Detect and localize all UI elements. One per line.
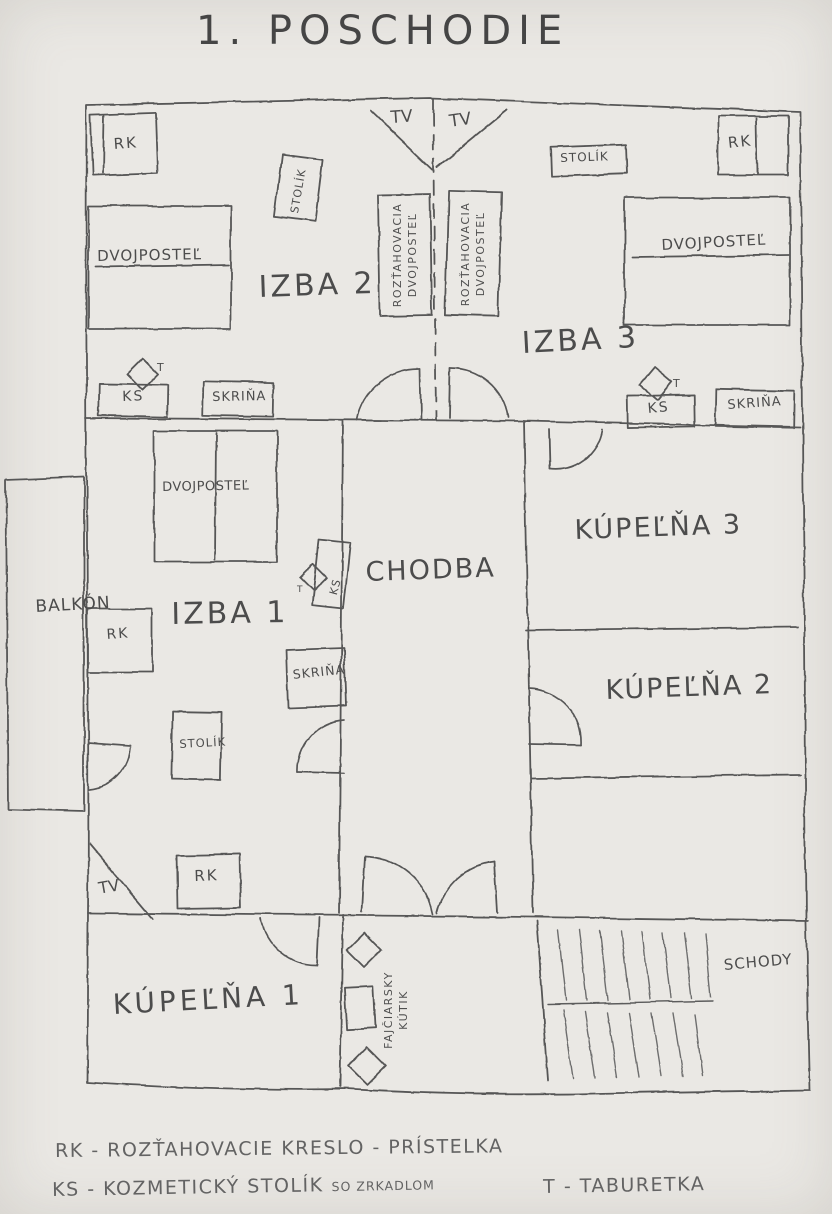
fajciarsky-line1: FAJČIARSKY (381, 971, 396, 1049)
rk-label-izba1-b: RK (194, 866, 219, 885)
page-title: 1. POSCHODIE (196, 8, 569, 54)
tv-corner-lines (90, 99, 507, 919)
roztahovacia-line2: DVOJPOSTEĽ (473, 212, 488, 297)
skrina-label-mid-left: SKRIŇA (212, 389, 267, 405)
dvojpostel-label-izba2: DVOJPOSTEĽ (97, 245, 202, 265)
rk-label-izba3: RK (727, 131, 753, 151)
fajciarsky-line2: KÚTIK (396, 990, 411, 1030)
room-label-izba2: IZBA 2 (258, 266, 376, 305)
room-label-balkon: BALKÓN (35, 593, 111, 617)
rk-label-izba1: RK (106, 625, 130, 643)
ks-label-mid-left: KS (122, 388, 145, 405)
floor-plan-sketch: 1. POSCHODIE IZBA 2 IZBA 3 IZBA 1 CHODBA… (0, 0, 832, 1214)
roztahovacia-line2: DVOJPOSTEĽ (405, 213, 420, 298)
partition-dashed-wall (433, 112, 436, 420)
stolik-label-izba1: STOLÍK (179, 735, 226, 751)
room-label-izba1: IZBA 1 (171, 595, 289, 632)
stolik-label-izba3: STOLÍK (560, 149, 609, 165)
balcony-walls (6, 477, 84, 811)
rk-label-izba2: RK (113, 133, 138, 153)
furniture-mid-left (99, 358, 275, 416)
ks-box (312, 540, 351, 609)
room-label-kupelna2: KÚPEĽŇA 2 (605, 669, 774, 706)
room-label-chodba: CHODBA (365, 552, 496, 588)
diamond-top (347, 933, 381, 967)
dvojpostel-label-izba1: DVOJPOSTEĽ (162, 478, 249, 495)
roztahovacia-line1: ROZŤAHOVACIA (458, 202, 473, 307)
stairs-bottom-row (563, 1010, 703, 1078)
fajciarsky-kutik-label: FAJČIARSKY KÚTIK (379, 945, 413, 1075)
tv-label-izba3: TV (448, 109, 473, 132)
roztahovacia-label-left: ROZŤAHOVACIA DVOJPOSTEĽ (388, 195, 422, 315)
floor-plan-linework (0, 0, 832, 1214)
dvojpostel-line (632, 255, 789, 257)
dvojpostel-line (96, 265, 229, 267)
t-label-mid-right: T (673, 377, 680, 390)
stairs-hatching (548, 930, 713, 1078)
roztahovacia-line1: ROZŤAHOVACIA (390, 203, 405, 308)
room-label-izba3: IZBA 3 (521, 320, 640, 361)
rk-box-inner-line (756, 118, 757, 174)
legend-t: T - TABURETKA (543, 1173, 705, 1198)
legend-rk: RK - ROZŤAHOVACIE KRESLO - PRÍSTELKA (55, 1135, 504, 1162)
tv-label-izba2: TV (390, 106, 413, 127)
t-label-mid-left: T (157, 361, 164, 374)
roztahovacia-label-right: ROZŤAHOVACIA DVOJPOSTEĽ (456, 194, 490, 314)
stairs-landing-line (548, 1001, 713, 1004)
dvojpostel-centerline (215, 433, 216, 560)
room-label-kupelna3: KÚPEĽŇA 3 (574, 509, 743, 546)
small-table-box (345, 986, 375, 1029)
furniture-izba3 (551, 116, 790, 325)
dvojpostel-box (624, 198, 790, 325)
rk-box-inner-line (103, 116, 104, 173)
t-label-izba1: T (297, 585, 303, 595)
tv-label-izba1: TV (97, 875, 121, 897)
stairs-top-row (558, 930, 711, 1000)
ks-label-mid-right: KS (647, 399, 670, 417)
legend-ks-note: SO ZRKADLOM (331, 1177, 435, 1194)
